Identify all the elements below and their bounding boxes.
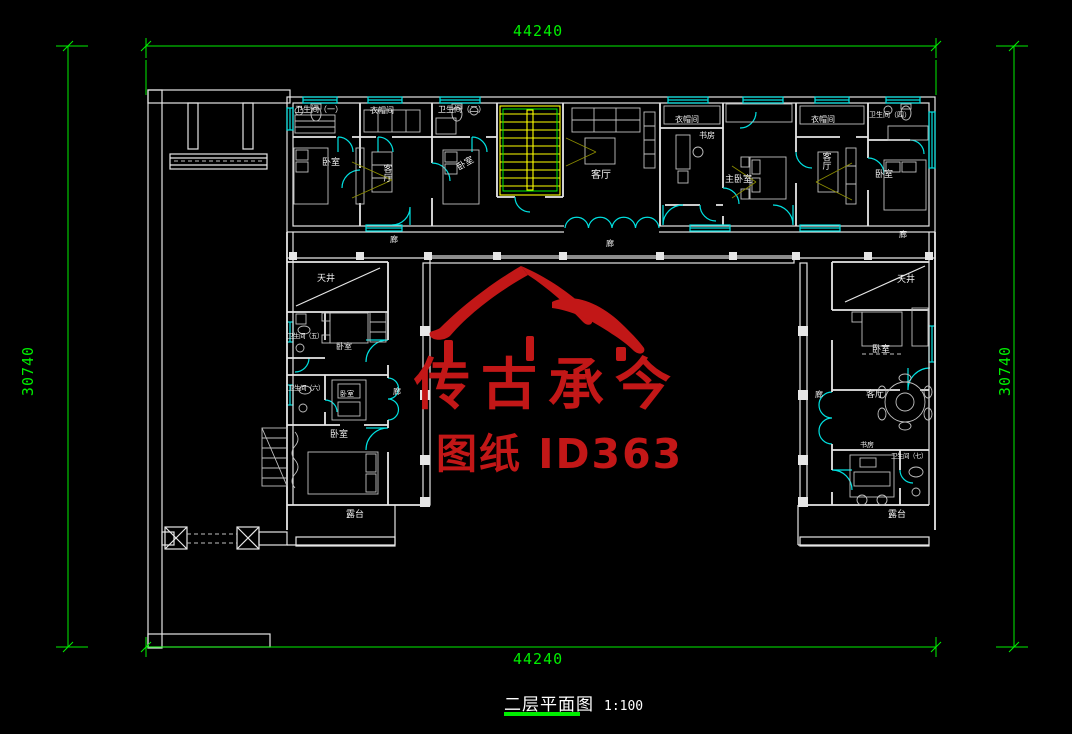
room-label-bath7: 卫生间（七）: [891, 453, 927, 460]
dimension-bottom: 44240: [513, 650, 563, 668]
staircase: [500, 106, 560, 195]
room-label-cloak3: 衣帽间: [811, 116, 835, 124]
west-wing-walls: [262, 232, 428, 546]
room-label-terrace-w: 露台: [346, 511, 364, 520]
room-label-bath5: 卫生间（五）: [287, 333, 323, 340]
cad-floor-plan-viewport: 卫生间（一） 衣帽间 卫生间（二） 卧室 客厅 卧室 客厅 衣帽间 书房 主卧室…: [0, 0, 1072, 734]
room-label-cloak2: 衣帽间: [675, 116, 699, 124]
room-label-cloak1: 衣帽间: [370, 107, 394, 115]
dimension-left: 30740: [19, 336, 37, 406]
room-label-skywell-e: 天井: [897, 276, 915, 285]
corridor-label-3: 廊: [899, 231, 907, 239]
corridor-label-1: 廊: [390, 236, 398, 244]
room-label-master-bed: 主卧室: [725, 176, 752, 185]
room-label-skywell-w: 天井: [317, 275, 335, 284]
room-label-bed-ne: 卧室: [875, 171, 893, 180]
room-label-living-center: 客厅: [591, 171, 611, 182]
room-label-living-ne: 客厅: [820, 152, 829, 170]
room-label-bath2: 卫生间（二）: [438, 106, 486, 114]
corridor-label-5: 廊: [815, 391, 823, 399]
room-label-bed-w1: 卧室: [336, 343, 352, 351]
room-label-living-e: 客厅: [866, 391, 884, 400]
dimension-top: 44240: [513, 22, 563, 40]
room-label-bed-nw: 卧室: [322, 159, 340, 168]
room-label-bath4: 卫生间（四）: [869, 112, 911, 119]
room-label-study-n: 书房: [699, 132, 715, 140]
title-underline: [504, 712, 580, 716]
corridor-label-4: 廊: [393, 388, 401, 396]
room-label-bed-w3: 卧室: [330, 431, 348, 440]
room-label-study-e: 书房: [860, 442, 874, 449]
room-label-bed-e1: 卧室: [872, 346, 890, 355]
room-label-bath1: 卫生间（一）: [295, 106, 343, 114]
room-label-terrace-e: 露台: [888, 511, 906, 520]
room-label-living-nw: 客厅: [381, 164, 390, 182]
enclosure-walls: [148, 90, 290, 648]
room-label-bed-w2: 卧室: [340, 391, 354, 398]
room-label-bath6: 卫生间（六）: [288, 385, 324, 392]
watermark-brand: 传古承今: [414, 340, 682, 421]
dimension-right: 30740: [996, 336, 1014, 406]
watermark-sheet-id: 图纸 ID363: [436, 420, 683, 480]
floor-plan-scale: 1:100: [604, 699, 643, 714]
corridor-label-2: 廊: [606, 240, 614, 248]
